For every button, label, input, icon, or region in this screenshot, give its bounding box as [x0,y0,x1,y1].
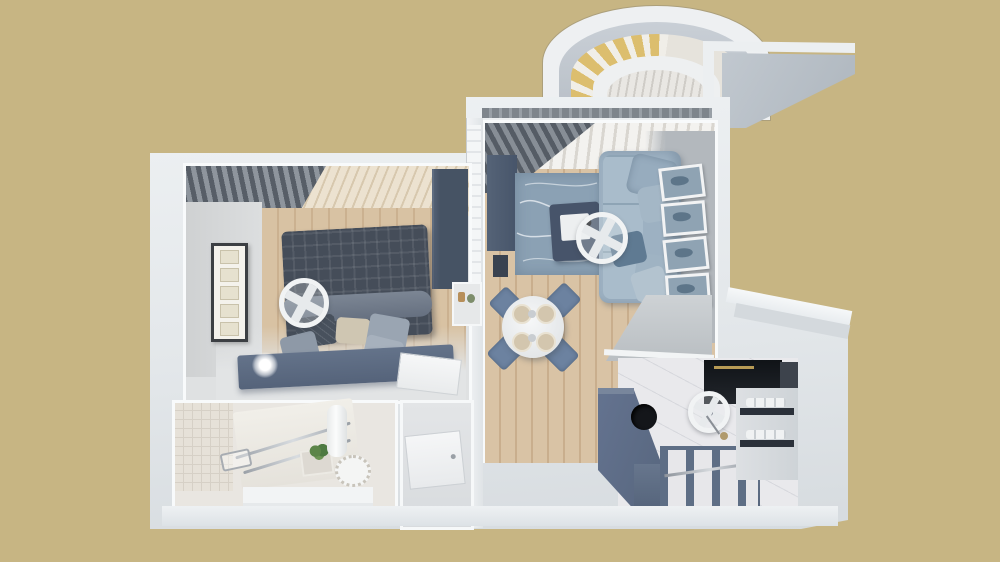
plate-stack [746,430,786,439]
ceiling-fan-icon [576,212,628,264]
jar [458,292,465,302]
ceiling-fan-icon [688,391,730,433]
black-round-sink [631,404,657,430]
dining-table [502,296,564,358]
plate [536,332,556,352]
plate [536,304,556,324]
ceiling-fan-icon [279,278,329,328]
water-heater-cylinder [327,405,347,457]
gold-handle [714,366,754,369]
bedside-lamp-glow [252,352,278,378]
glass [528,334,536,342]
tv-cabinet [487,155,517,251]
wall-shelf [740,408,794,415]
wardrobe [432,169,468,289]
bottom-outer-wall [162,506,838,526]
toilet [335,455,371,487]
roof-overhang-gray-panel [714,51,855,129]
glass [528,310,536,318]
framed-botanical-prints [211,243,248,342]
hallway-open-door [404,430,465,490]
shelf-niche [452,282,482,326]
plate-stack [746,398,786,407]
floor-plan-render [0,0,1000,562]
bedroom [183,163,472,404]
wall-art-frame [658,163,706,201]
door-handle [450,454,455,459]
kitchen-counter-edge [598,388,634,394]
curtain-rod-strip [482,108,712,118]
fan-pull-knob [720,432,728,440]
speaker [493,255,508,277]
wall-shelf [740,440,794,447]
plant-pot [467,294,475,303]
wall-art-frame [662,236,709,273]
wall-art-frame [661,200,708,237]
bedroom-open-door [396,352,462,395]
mosaic-tile-wall [175,403,233,491]
